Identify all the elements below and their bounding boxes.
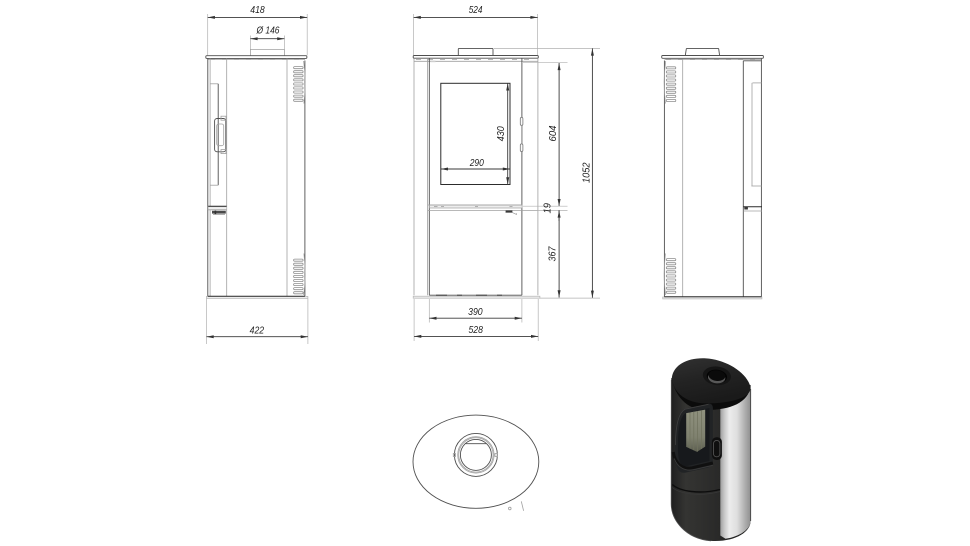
svg-text:528: 528	[468, 324, 483, 336]
svg-text:390: 390	[468, 306, 483, 318]
svg-text:604: 604	[547, 125, 559, 141]
svg-text:1052: 1052	[580, 162, 592, 183]
svg-text:418: 418	[250, 4, 265, 16]
svg-text:Ø 146: Ø 146	[256, 24, 280, 36]
svg-text:524: 524	[469, 4, 483, 16]
svg-text:19: 19	[542, 203, 554, 214]
svg-text:422: 422	[250, 325, 265, 337]
svg-text:367: 367	[547, 246, 559, 262]
svg-text:430: 430	[495, 126, 507, 141]
svg-text:290: 290	[469, 157, 484, 169]
